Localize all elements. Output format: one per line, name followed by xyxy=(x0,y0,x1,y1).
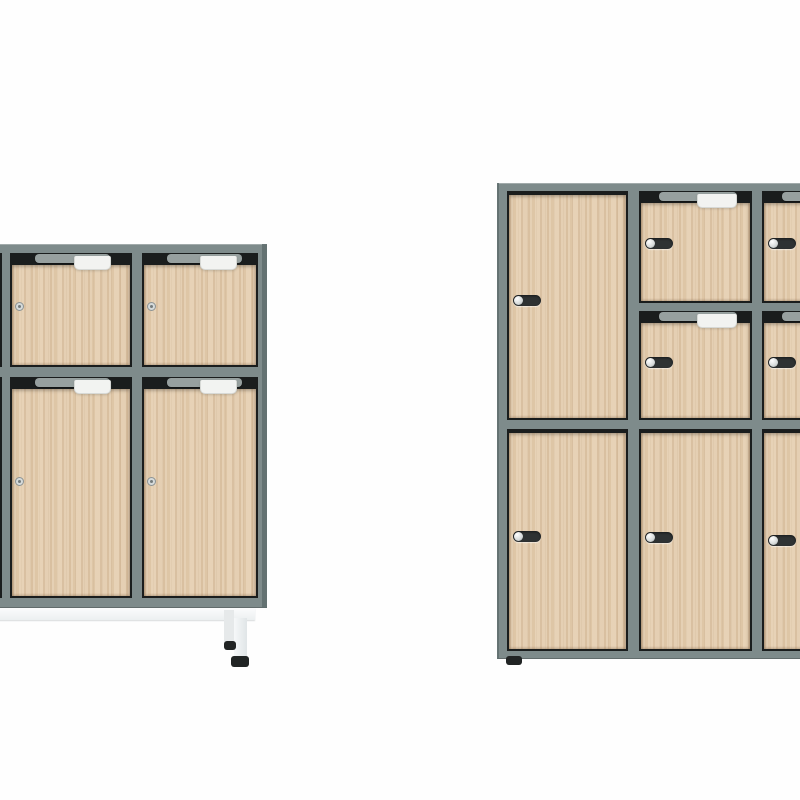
locker-cell xyxy=(639,429,752,651)
door-handle-strip xyxy=(782,312,800,321)
locker-door xyxy=(764,203,800,301)
door-lock-round-icon xyxy=(147,477,156,486)
door-handle-strip xyxy=(782,192,800,201)
lock-knob-icon xyxy=(769,239,778,248)
door-handle-recess xyxy=(697,194,737,208)
door-lock-pill-icon xyxy=(768,535,796,546)
locker-door xyxy=(509,195,626,418)
door-lock-pill-icon xyxy=(513,531,541,542)
locker-cell xyxy=(507,191,628,420)
lock-knob-icon xyxy=(514,296,523,305)
lock-knob-icon xyxy=(769,358,778,367)
locker-cell xyxy=(639,311,752,420)
locker-cell xyxy=(142,253,258,367)
door-handle-recess xyxy=(200,380,237,394)
foot-cap xyxy=(231,656,249,667)
door-handle-recess xyxy=(74,380,111,394)
locker-cell xyxy=(10,377,132,598)
foot-cap xyxy=(224,641,236,650)
locker-door xyxy=(12,265,130,365)
door-lock-round-icon xyxy=(15,302,24,311)
locker-cell xyxy=(639,191,752,303)
locker-door xyxy=(764,323,800,418)
door-handle-recess xyxy=(697,314,737,328)
door-handle-recess xyxy=(74,256,111,270)
door-lock-pill-icon xyxy=(645,357,673,368)
door-handle-recess xyxy=(200,256,237,270)
cabinet-side-shade xyxy=(497,183,499,659)
lock-knob-icon xyxy=(769,536,778,545)
lock-knob-icon xyxy=(646,358,655,367)
door-lock-round-icon xyxy=(147,302,156,311)
lock-knob-icon xyxy=(514,532,523,541)
locker-cell xyxy=(10,253,132,367)
locker-door xyxy=(144,389,256,596)
door-lock-pill-icon xyxy=(645,238,673,249)
locker-door xyxy=(144,265,256,365)
locker-cell xyxy=(0,377,2,598)
door-lock-round-icon xyxy=(15,477,24,486)
leg-upright xyxy=(234,618,247,659)
locker-door xyxy=(641,203,750,301)
foot-cap xyxy=(506,656,522,665)
cabinet-side-shade xyxy=(262,244,267,608)
leg-frame-bar xyxy=(0,608,255,620)
leg-upright xyxy=(224,610,234,644)
door-lock-pill-icon xyxy=(768,357,796,368)
locker-cell xyxy=(0,253,2,367)
door-lock-pill-icon xyxy=(768,238,796,249)
locker-door xyxy=(641,323,750,418)
locker-cell xyxy=(507,429,628,651)
door-lock-pill-icon xyxy=(513,295,541,306)
locker-door xyxy=(12,389,130,596)
locker-cell xyxy=(142,377,258,598)
door-lock-pill-icon xyxy=(645,532,673,543)
locker-cell xyxy=(762,311,800,420)
lock-knob-icon xyxy=(646,239,655,248)
lock-knob-icon xyxy=(646,533,655,542)
locker-cell xyxy=(762,191,800,303)
locker-cell xyxy=(762,429,800,651)
product-photo xyxy=(0,0,800,800)
